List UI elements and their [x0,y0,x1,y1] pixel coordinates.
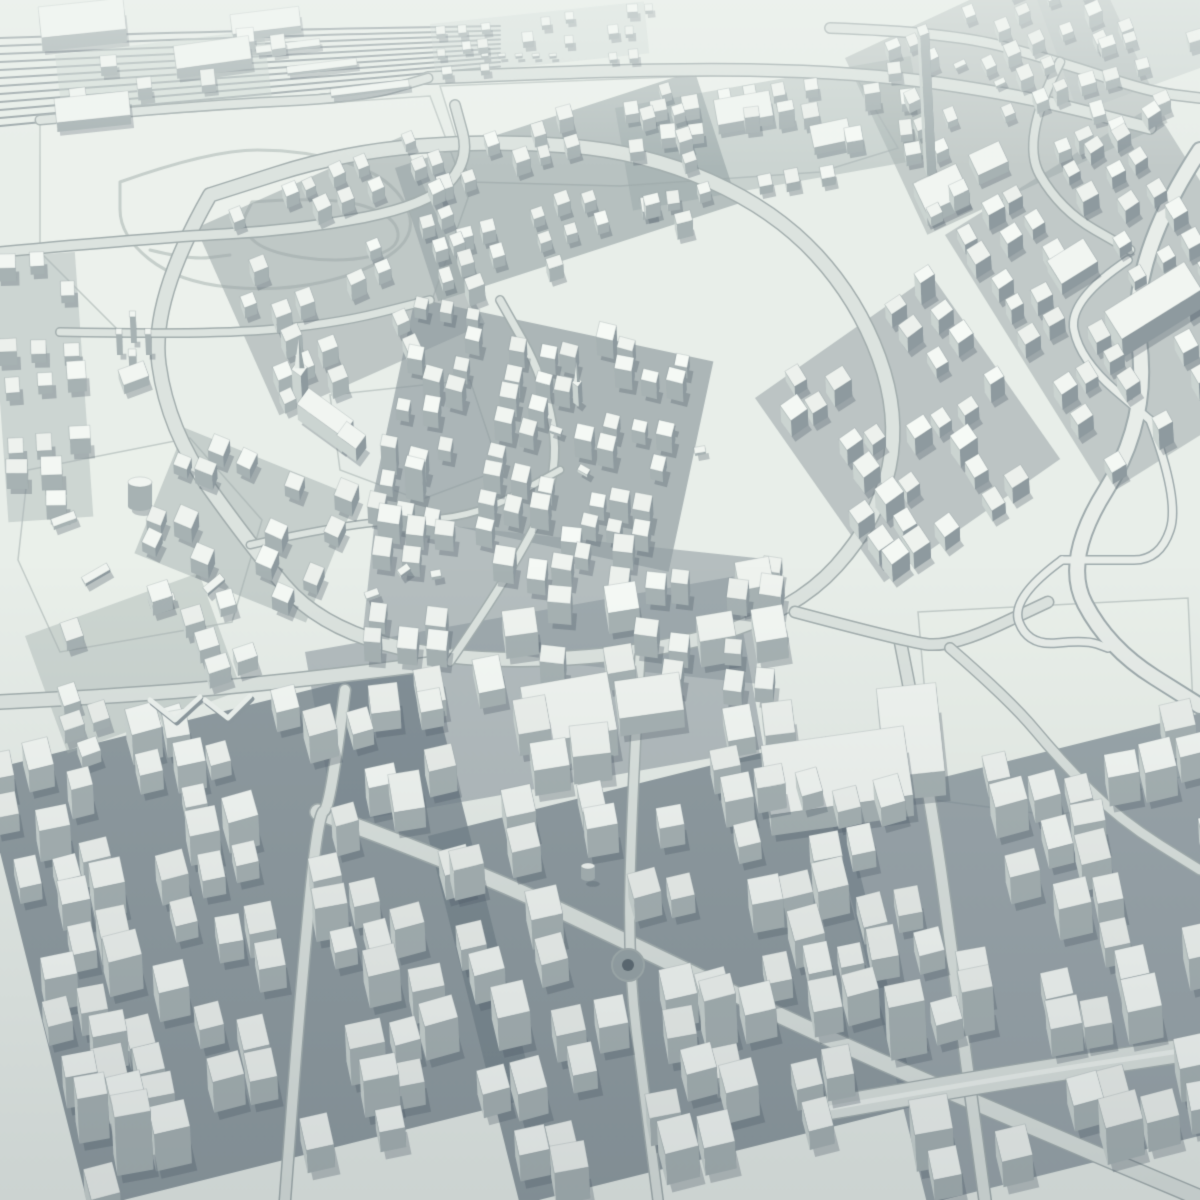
city-model-viewport [0,0,1200,1200]
city-3d-map-canvas [0,0,1200,1200]
